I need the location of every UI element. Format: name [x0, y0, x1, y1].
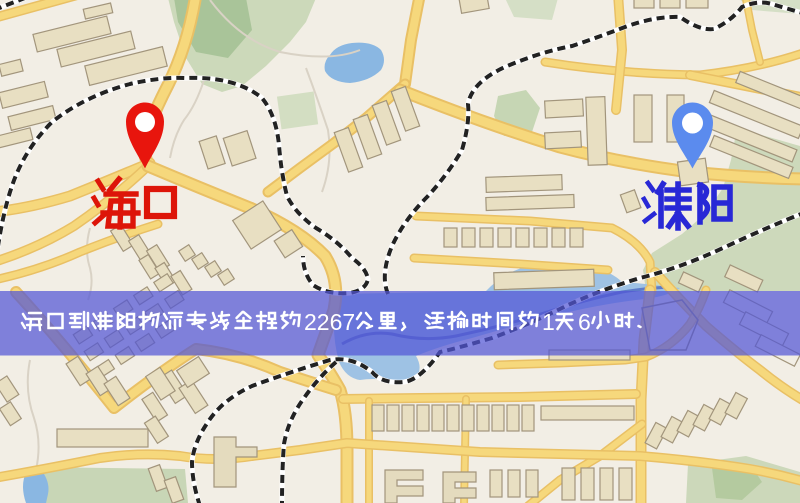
svg-text:1: 1	[542, 309, 555, 335]
svg-text:2267: 2267	[304, 309, 355, 335]
svg-text:6: 6	[578, 309, 591, 335]
